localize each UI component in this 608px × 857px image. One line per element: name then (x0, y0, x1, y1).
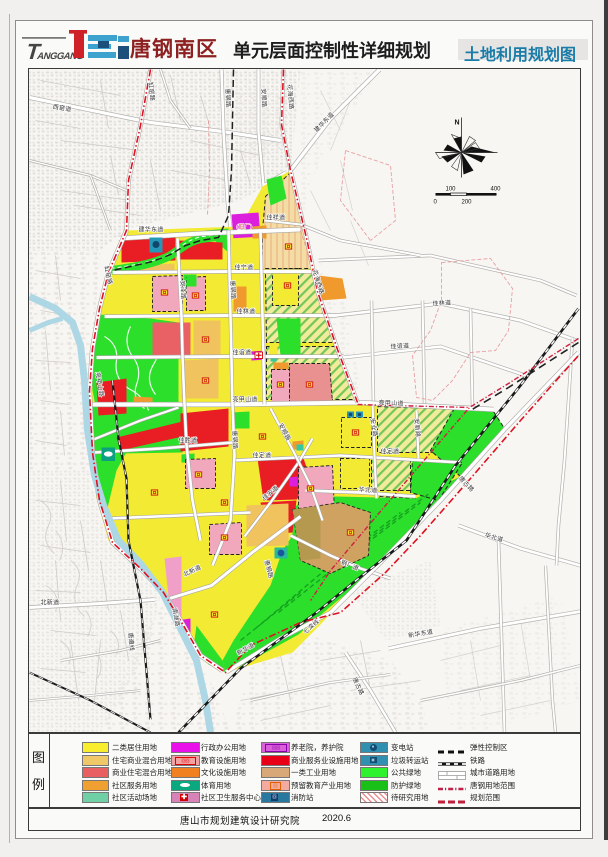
svg-text:N: N (455, 120, 460, 127)
svg-text:北新道: 北新道 (41, 599, 60, 607)
svg-text:佳祥道: 佳祥道 (267, 214, 286, 222)
svg-text:亮甲山道: 亮甲山道 (233, 396, 258, 404)
svg-text:100: 100 (446, 187, 457, 193)
svg-text:(旧厂): (旧厂) (237, 224, 253, 231)
svg-text:建华东道: 建华东道 (139, 226, 164, 234)
svg-text:佳林道: 佳林道 (237, 308, 256, 316)
svg-text:200: 200 (462, 200, 473, 206)
svg-text:佳定道: 佳定道 (381, 448, 400, 456)
svg-text:佳胜道: 佳胜道 (179, 437, 198, 445)
svg-text:佳宁道: 佳宁道 (235, 264, 254, 272)
svg-text:佳定道: 佳定道 (253, 452, 272, 460)
svg-text:佳谊道: 佳谊道 (233, 349, 252, 357)
svg-text:400: 400 (491, 187, 502, 193)
